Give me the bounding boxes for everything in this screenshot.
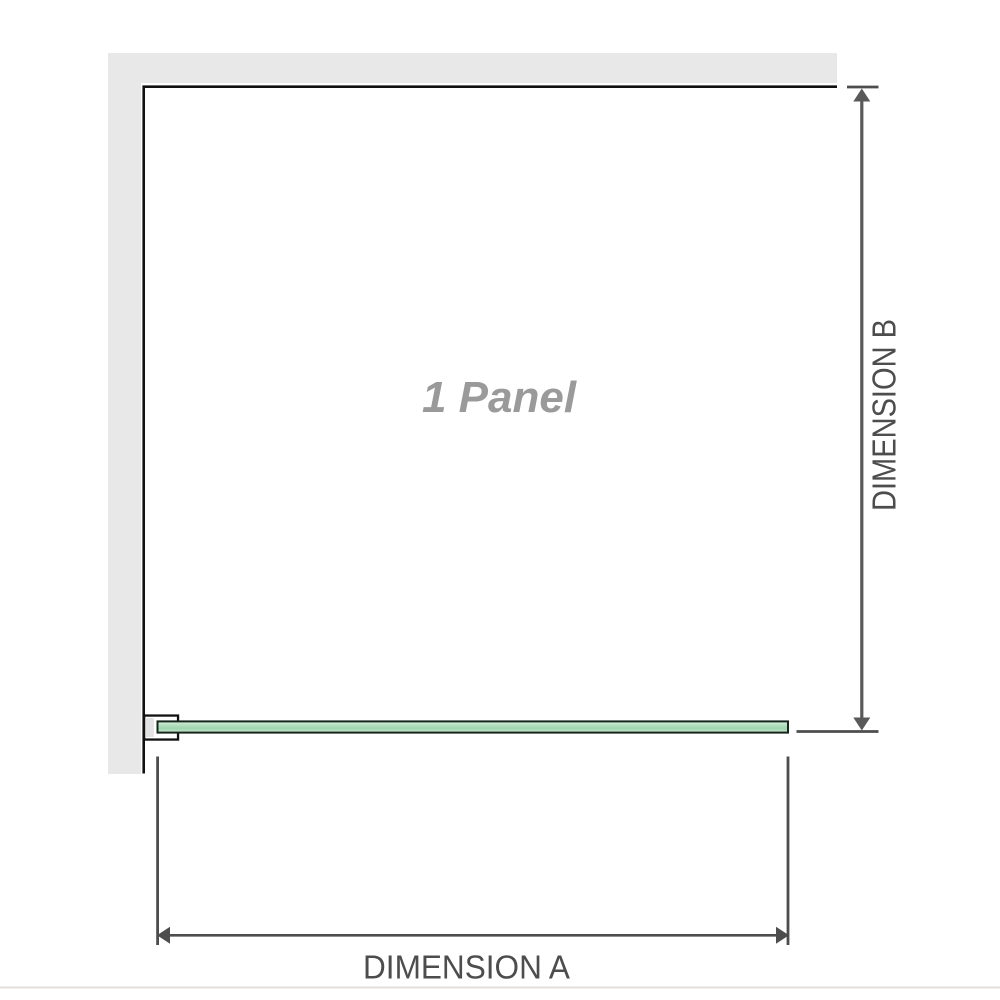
svg-text:DIMENSION B: DIMENSION B bbox=[866, 319, 903, 511]
svg-text:1 Panel: 1 Panel bbox=[422, 373, 577, 422]
svg-text:DIMENSION A: DIMENSION A bbox=[363, 949, 570, 986]
